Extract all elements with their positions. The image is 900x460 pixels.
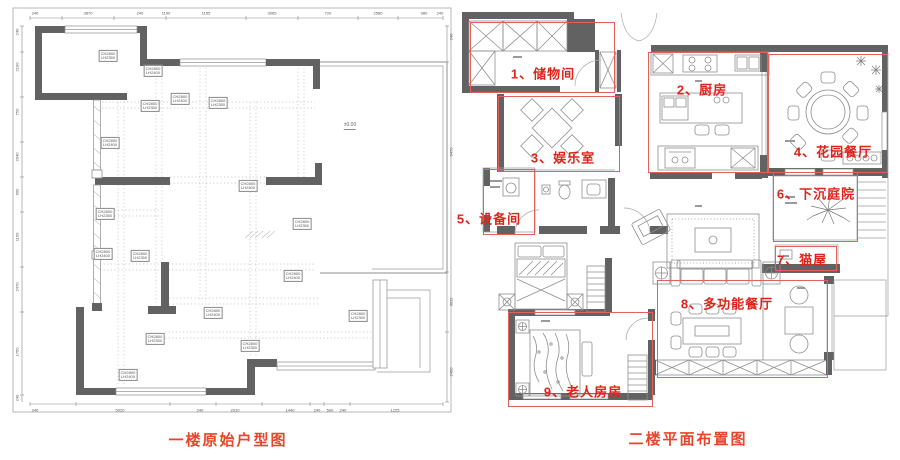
second-floor-caption: 二楼平面布置图 xyxy=(628,428,747,449)
first-floor-plan: CH2800LH2350CH2800LH2400CH2800LH2350CH28… xyxy=(10,2,455,424)
second-floor-plan: 1、储物间2、厨房3、娱乐室4、花园餐厅5、设备间6、下沉庭院7、猫屋8、多功能… xyxy=(455,0,900,425)
second-floor-plan-drawing xyxy=(455,0,900,425)
first-floor-plan-drawing xyxy=(10,2,455,424)
first-floor-caption: 一楼原始户型图 xyxy=(168,429,287,450)
floor-plan-comparison-image: CH2800LH2350CH2800LH2400CH2800LH2350CH28… xyxy=(0,0,900,460)
